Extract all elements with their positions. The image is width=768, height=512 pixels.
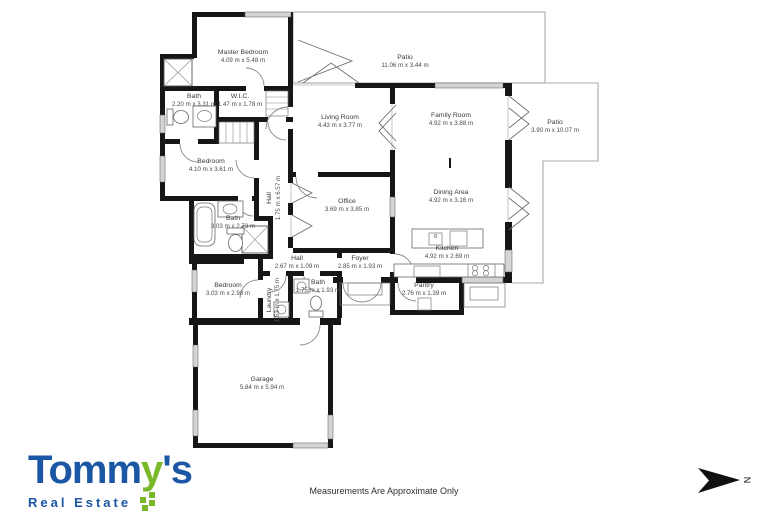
label-bath-3: Bath (311, 279, 325, 286)
svg-text:2.85 m x 1.93 m: 2.85 m x 1.93 m (338, 263, 382, 270)
label-hall-2: Hall (291, 255, 303, 262)
label-bedroom-1: Bedroom (197, 158, 225, 165)
label-kitchen: Kitchen (436, 245, 459, 252)
svg-text:5.84 m x 5.94 m: 5.84 m x 5.94 m (240, 384, 284, 391)
svg-text:4.92 m x 3.88 m: 4.92 m x 3.88 m (429, 120, 473, 127)
svg-text:1.75 m x 6.57 m: 1.75 m x 6.57 m (275, 176, 282, 220)
agency-logo-subtitle: Real Estate (28, 496, 131, 509)
svg-text:1.53 m x 1.75 m: 1.53 m x 1.75 m (274, 278, 281, 322)
label-garage: Garage (251, 376, 274, 383)
agency-logo-wordmark: Tommy's (28, 450, 192, 490)
svg-text:4.10 m x 3.61 m: 4.10 m x 3.61 m (189, 166, 233, 173)
svg-text:2.76 m x 1.39 m: 2.76 m x 1.39 m (402, 290, 446, 297)
agency-logo: Tommy's Real Estate (28, 450, 192, 512)
floor-plan-drawing: Master Bedroom 4.09 m x 5.48 m Bath 2.20… (0, 0, 768, 512)
svg-text:4.43 m x 3.77 m: 4.43 m x 3.77 m (318, 122, 362, 129)
label-bedroom-2: Bedroom (214, 282, 242, 289)
label-pantry: Pantry (414, 282, 434, 289)
measurements-disclaimer: Measurements Are Approximate Only (0, 486, 768, 496)
svg-text:3.03 m x 2.98 m: 3.03 m x 2.98 m (206, 290, 250, 297)
svg-text:4.92 m x 2.69 m: 4.92 m x 2.69 m (425, 253, 469, 260)
label-dining-area: Dining Area (433, 189, 468, 196)
kitchen-fixtures (394, 229, 504, 310)
label-bath-1: Bath (187, 93, 201, 100)
label-patio-right: Patio (547, 119, 563, 126)
svg-text:4.09 m x 5.48 m: 4.09 m x 5.48 m (221, 57, 265, 64)
svg-text:3.03 m x 2.73 m: 3.03 m x 2.73 m (211, 223, 255, 230)
svg-text:2.67 m x 1.09 m: 2.67 m x 1.09 m (275, 263, 319, 270)
opening-lines (291, 85, 508, 237)
svg-text:1.47 m x 1.78 m: 1.47 m x 1.78 m (218, 101, 262, 108)
label-office: Office (338, 198, 356, 205)
label-patio-top: Patio (397, 54, 413, 61)
label-bath-2: Bath (226, 215, 240, 222)
svg-text:11.06 m x 3.44 m: 11.06 m x 3.44 m (381, 62, 428, 69)
floor-plan-page: Master Bedroom 4.09 m x 5.48 m Bath 2.20… (0, 0, 768, 512)
label-wic: W.I.C. (231, 93, 250, 100)
label-hall-1: Hall (266, 192, 273, 204)
svg-text:4.92 m x 3.16 m: 4.92 m x 3.16 m (429, 197, 473, 204)
svg-text:2.20 m x 3.31 m: 2.20 m x 3.31 m (172, 101, 216, 108)
label-laundry: Laundry (266, 287, 273, 312)
north-arrow-label: N (742, 477, 752, 484)
label-foyer: Foyer (351, 255, 369, 262)
svg-text:1.75 m x 1.93 m: 1.75 m x 1.93 m (296, 287, 340, 294)
label-master-bedroom: Master Bedroom (218, 49, 269, 56)
label-living-room: Living Room (321, 114, 359, 121)
label-family-room: Family Room (431, 112, 471, 119)
svg-text:3.69 m x 3.85 m: 3.69 m x 3.85 m (325, 206, 369, 213)
room-labels: Master Bedroom 4.09 m x 5.48 m Bath 2.20… (172, 49, 579, 391)
svg-text:3.90 m x 10.07 m: 3.90 m x 10.07 m (531, 127, 579, 134)
